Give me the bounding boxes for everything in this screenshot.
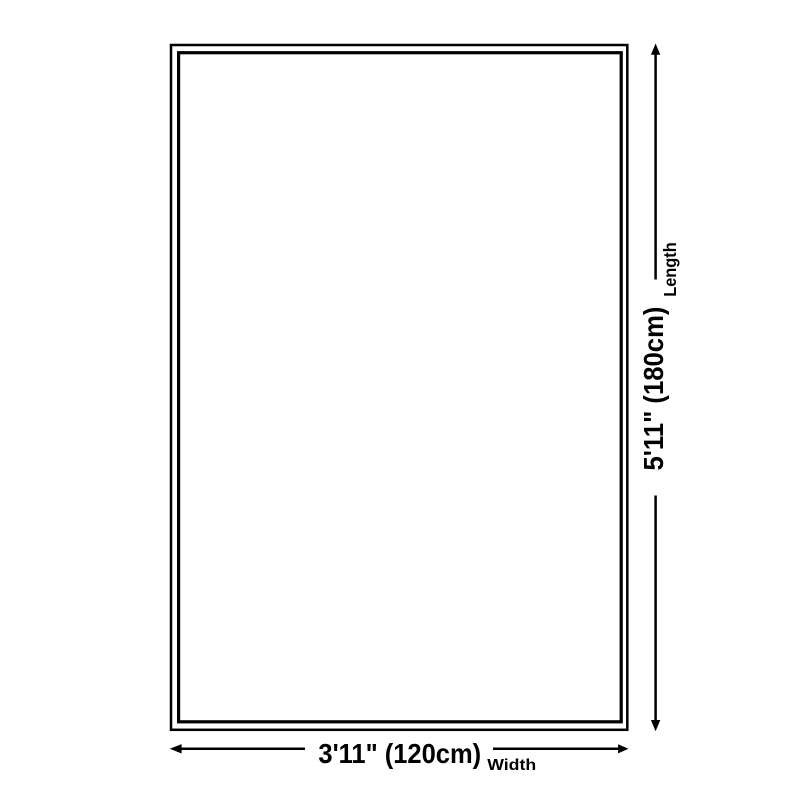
svg-text:3'11" (120cm): 3'11" (120cm) xyxy=(318,738,481,769)
svg-text:5'11" (180cm): 5'11" (180cm) xyxy=(638,307,669,471)
svg-text:Length: Length xyxy=(659,242,680,297)
svg-text:Width: Width xyxy=(487,756,536,774)
